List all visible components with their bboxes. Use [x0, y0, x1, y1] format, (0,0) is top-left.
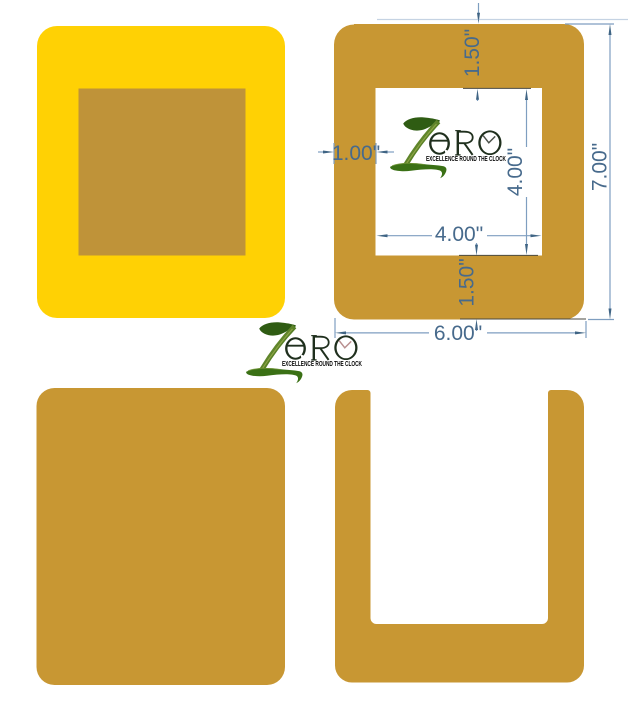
svg-text:7.00": 7.00": [589, 143, 612, 191]
svg-text:1.00": 1.00": [332, 142, 380, 165]
svg-text:4.00": 4.00": [435, 223, 483, 246]
svg-text:1.50": 1.50": [456, 258, 479, 306]
svg-text:6.00": 6.00": [434, 322, 482, 345]
svg-text:1.50": 1.50": [461, 29, 484, 77]
svg-text:4.00": 4.00": [504, 148, 527, 196]
